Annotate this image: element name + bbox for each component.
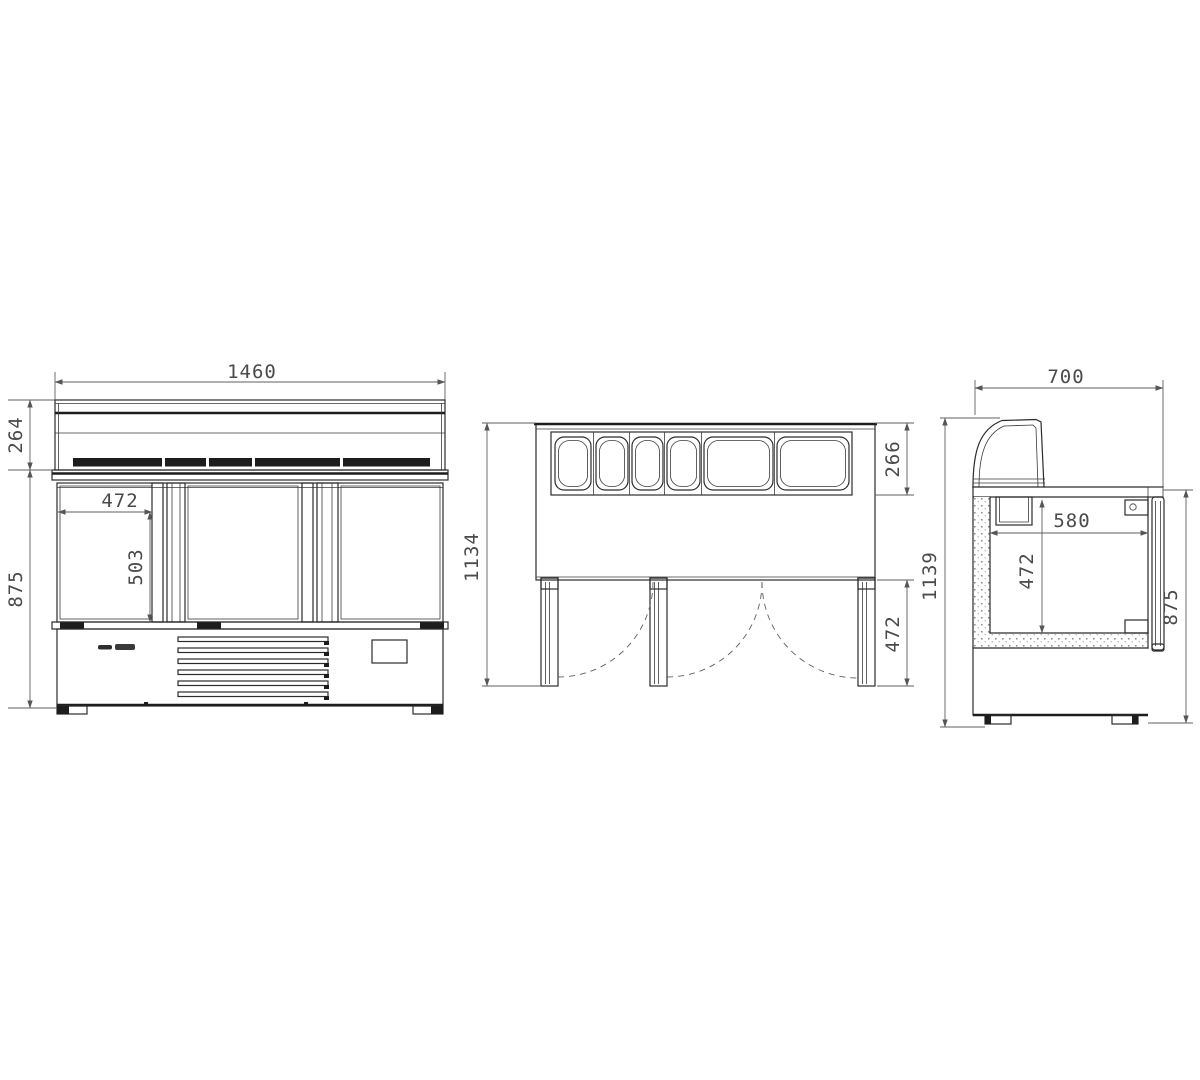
side-feet (985, 715, 1138, 724)
control-panel (372, 640, 407, 663)
open-door-leaf (858, 578, 875, 686)
front-worktop (52, 470, 448, 480)
dim-label-plan-depth: 1134 (461, 532, 483, 582)
three-view-drawing: 1460 (0, 0, 1200, 1080)
gn-pan-small (555, 437, 591, 490)
dim-label-front-top-height: 264 (5, 416, 27, 453)
gn-pan-small (596, 437, 628, 490)
gn-pan-small (632, 437, 663, 490)
door-handle (420, 623, 444, 629)
front-pan-rail (73, 458, 430, 467)
door-swing-arc (762, 582, 858, 678)
front-canopy-section (55, 400, 445, 470)
dim-side-interior: 580 472 (990, 500, 1148, 633)
front-base (57, 629, 443, 714)
gn-pan-large (777, 437, 849, 490)
dim-side-body-height: 875 (1148, 490, 1193, 723)
dim-label-front-width: 1460 (227, 361, 277, 383)
brand-logo (98, 644, 135, 650)
dim-label-front-body-height: 875 (5, 570, 27, 607)
drawing-canvas: 1460 (0, 0, 1200, 1080)
dim-label-interior-width: 580 (1053, 510, 1090, 532)
door-swing-arc (558, 582, 653, 677)
dim-label-side-total-height: 1139 (919, 551, 941, 601)
door-2 (188, 486, 298, 619)
plan-view: 1134 266 472 (461, 423, 914, 686)
door-3 (341, 486, 440, 619)
dim-label-door-width: 472 (101, 490, 138, 512)
plan-pan-well (551, 432, 852, 495)
front-view: 1460 (5, 361, 448, 714)
side-worktop (973, 487, 1163, 497)
door-handle (197, 623, 221, 629)
insulation-bottom (974, 633, 1148, 648)
hinge-block-top (1125, 500, 1148, 515)
door-swing-arc (667, 582, 762, 677)
vent-grille (178, 637, 329, 700)
gn-pan-large (704, 437, 773, 490)
front-feet (57, 706, 443, 714)
dim-front-heights: 264 875 (5, 400, 57, 708)
dim-plan-door-swing: 472 (877, 580, 914, 686)
gn-pan-small (667, 437, 700, 490)
door-handle (60, 623, 84, 629)
door-divider-1 (152, 483, 185, 622)
pan-well-section (996, 497, 1032, 525)
open-door-leaf (541, 578, 558, 686)
plan-open-doors (541, 578, 875, 686)
dim-front-door: 472 503 (58, 490, 152, 622)
dim-label-interior-height: 472 (1016, 552, 1038, 589)
dim-plan-well-depth: 266 (875, 423, 914, 495)
insulation-left (974, 497, 990, 648)
dim-label-side-body-height: 875 (1160, 588, 1182, 625)
dim-label-plan-well-depth: 266 (882, 440, 904, 477)
dim-label-door-height: 503 (125, 548, 147, 585)
side-view: 700 (919, 366, 1193, 727)
dim-label-plan-door-swing: 472 (882, 615, 904, 652)
side-door-section (1152, 497, 1164, 651)
door-divider-2 (302, 483, 338, 622)
dim-front-width: 1460 (55, 361, 445, 401)
hinge-block-bottom (1125, 620, 1148, 633)
door-bottom-rail (52, 622, 448, 629)
dim-plan-depth: 1134 (461, 423, 541, 686)
dim-label-side-width: 700 (1047, 366, 1084, 388)
glass-canopy (973, 420, 1045, 488)
